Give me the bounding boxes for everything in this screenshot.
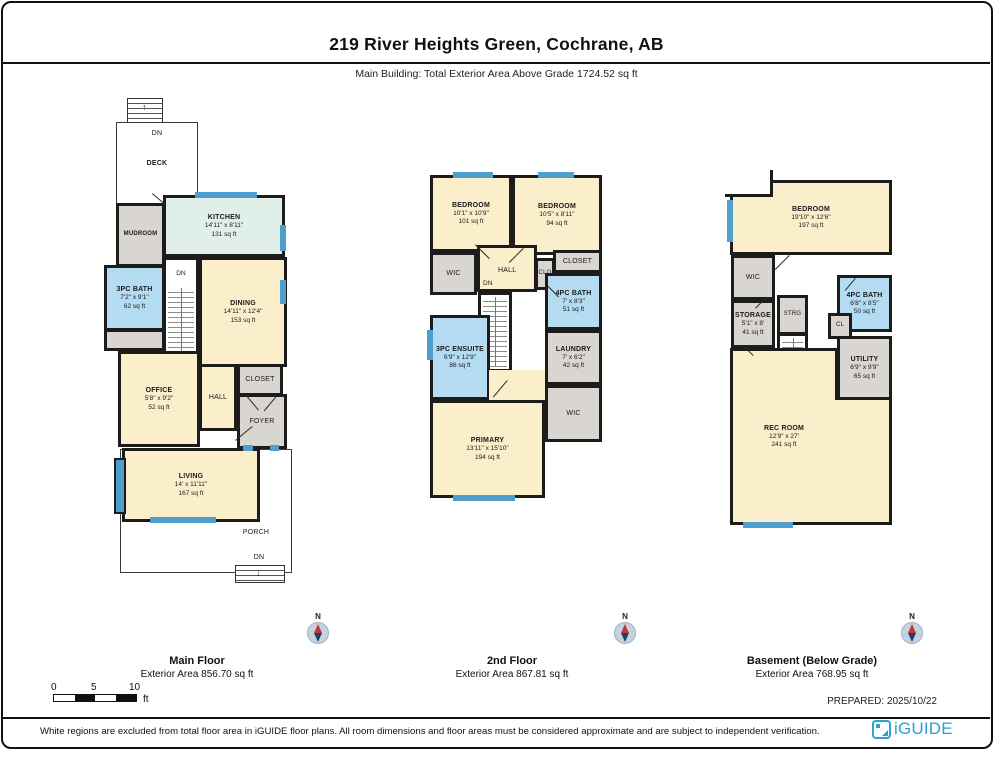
footer-divider bbox=[3, 717, 990, 719]
room-name: WIC bbox=[566, 409, 580, 418]
scale-segment bbox=[54, 695, 75, 701]
window bbox=[453, 495, 515, 501]
room-area: 131 sq ft bbox=[212, 231, 237, 239]
up-arrow-icon: ↑ bbox=[142, 102, 147, 112]
deck-dn-label: DN bbox=[117, 129, 197, 138]
window bbox=[243, 445, 253, 451]
window bbox=[195, 192, 257, 198]
porch-dn-label: DN bbox=[239, 553, 279, 562]
floor-name: Main Floor bbox=[87, 655, 307, 667]
room-name: WIC bbox=[746, 273, 760, 282]
iguide-logo-icon bbox=[872, 720, 891, 739]
room-area: 62 sq ft bbox=[124, 303, 145, 311]
room-name: KITCHEN bbox=[208, 213, 241, 222]
room-dims: 10'5" x 8'11" bbox=[539, 211, 574, 219]
room-area: 167 sq ft bbox=[179, 490, 204, 498]
room-dims: 14'11" x 12'4" bbox=[224, 308, 263, 316]
room-name: 4PC BATH bbox=[846, 291, 882, 300]
scale-segment bbox=[75, 695, 96, 701]
scale-bar: 0 5 10 ft bbox=[53, 682, 163, 702]
compass-needle-south bbox=[908, 633, 916, 642]
room-deck: DN DECK bbox=[116, 122, 198, 206]
room-name: LIVING bbox=[179, 472, 204, 481]
floor-name: 2nd Floor bbox=[402, 655, 622, 667]
floor-label-second: 2nd Floor Exterior Area 867.81 sq ft bbox=[402, 655, 622, 680]
room-name: BEDROOM bbox=[538, 202, 576, 211]
room-dims: 14' x 11'11" bbox=[175, 481, 207, 489]
room-area: 41 sq ft bbox=[742, 329, 763, 337]
rec-room-extension bbox=[835, 397, 892, 525]
room-area: 153 sq ft bbox=[231, 317, 256, 325]
stairs-dn-label: DN bbox=[166, 270, 196, 277]
room-dims: 13'11" x 15'10" bbox=[466, 445, 508, 453]
room-dims: 19'10" x 12'6" bbox=[791, 214, 830, 222]
compass-n-label: N bbox=[303, 612, 333, 621]
room-area: 197 sq ft bbox=[799, 222, 824, 230]
room-area: 86 sq ft bbox=[449, 362, 470, 370]
scale-segment bbox=[116, 695, 137, 701]
room-area: 51 sq ft bbox=[563, 306, 584, 314]
disclaimer-text: White regions are excluded from total fl… bbox=[40, 726, 820, 737]
room-name: BEDROOM bbox=[792, 205, 830, 214]
window bbox=[427, 330, 433, 360]
room-name: BEDROOM bbox=[452, 201, 490, 210]
bay-window bbox=[114, 458, 126, 514]
room-area: 241 sq ft bbox=[772, 441, 797, 449]
room-dims: 6'9" x 12'9" bbox=[444, 354, 476, 362]
room-area: 94 sq ft bbox=[546, 220, 567, 228]
compass-n-label: N bbox=[610, 612, 640, 621]
page-subtitle: Main Building: Total Exterior Area Above… bbox=[0, 68, 993, 80]
room-cl: CL bbox=[828, 313, 852, 339]
room-name: FOYER bbox=[249, 417, 274, 426]
room-name: STORAGE bbox=[735, 311, 771, 320]
room-dims: 5'8" x 9'2" bbox=[145, 395, 173, 403]
room-name: HALL bbox=[498, 266, 516, 275]
floor-label-main: Main Floor Exterior Area 856.70 sq ft bbox=[87, 655, 307, 680]
scale-segment bbox=[95, 695, 116, 701]
room-wic-2: WIC bbox=[545, 385, 602, 442]
room-area: 194 sq ft bbox=[475, 454, 500, 462]
room-foyer: FOYER bbox=[237, 394, 287, 449]
floor-area: Exterior Area 856.70 sq ft bbox=[87, 669, 307, 680]
stairs-dn-label: DN bbox=[483, 280, 492, 287]
room-utility: UTILITY 6'9" x 9'9" 65 sq ft bbox=[837, 336, 892, 400]
room-name: HALL bbox=[209, 393, 227, 402]
window bbox=[453, 172, 493, 178]
room-name: WIC bbox=[446, 269, 460, 278]
scale-unit: ft bbox=[143, 694, 149, 705]
floor-label-basement: Basement (Below Grade) Exterior Area 768… bbox=[702, 655, 922, 680]
window bbox=[280, 225, 286, 251]
room-wic: WIC bbox=[430, 252, 477, 295]
room-name: CLOSET bbox=[245, 375, 274, 384]
down-arrow-icon: ↓ bbox=[256, 568, 261, 578]
compass-needle-north bbox=[621, 624, 629, 633]
room-dims: 5'1" x 8' bbox=[742, 320, 765, 328]
room-dims: 10'1" x 10'9" bbox=[453, 210, 489, 218]
compass-needle-south bbox=[314, 633, 322, 642]
room-mudroom: MUDROOM bbox=[116, 203, 165, 267]
plan-basement: BEDROOM 19'10" x 12'6" 197 sq ft WIC STR… bbox=[725, 170, 895, 527]
scale-tick-10: 10 bbox=[129, 682, 140, 693]
room-kitchen: KITCHEN 14'11" x 8'11" 131 sq ft bbox=[163, 195, 285, 257]
compass-needle-north bbox=[314, 624, 322, 633]
prepared-date: PREPARED: 2025/10/22 bbox=[827, 696, 937, 707]
room-name: REC ROOM bbox=[764, 424, 804, 433]
room-dims: 12'9" x 27' bbox=[769, 433, 799, 441]
room-rec-room: REC ROOM 12'9" x 27' 241 sq ft bbox=[730, 348, 838, 525]
room-name: MUDROOM bbox=[124, 231, 158, 239]
compass-icon bbox=[614, 622, 636, 644]
room-area: 52 sq ft bbox=[148, 404, 169, 412]
window bbox=[150, 517, 216, 523]
room-dining: DINING 14'11" x 12'4" 153 sq ft bbox=[199, 257, 287, 367]
iguide-logo: iGUIDE bbox=[872, 719, 953, 739]
page-title: 219 River Heights Green, Cochrane, AB bbox=[0, 34, 993, 55]
room-laundry: LAUNDRY 7' x 6'2" 42 sq ft bbox=[545, 330, 602, 385]
floor-area: Exterior Area 768.95 sq ft bbox=[702, 669, 922, 680]
room-wic: WIC bbox=[731, 255, 775, 300]
room-area: 101 sq ft bbox=[459, 218, 484, 226]
window bbox=[280, 280, 286, 304]
room-bedroom-1: BEDROOM 10'1" x 10'9" 101 sq ft bbox=[430, 175, 512, 252]
room-closet: CLOSET bbox=[553, 250, 602, 273]
iguide-logo-text: iGUIDE bbox=[894, 719, 953, 739]
room-name: STRG bbox=[784, 311, 801, 319]
plan-second-floor: BEDROOM 10'1" x 10'9" 101 sq ft BEDROOM … bbox=[427, 168, 609, 500]
compass-needle-south bbox=[621, 633, 629, 642]
door-swing bbox=[775, 255, 790, 270]
title-divider bbox=[3, 62, 990, 64]
compass-n-label: N bbox=[897, 612, 927, 621]
floor-plan-sheet: 219 River Heights Green, Cochrane, AB Ma… bbox=[0, 0, 993, 768]
floor-area: Exterior Area 867.81 sq ft bbox=[402, 669, 622, 680]
compass-basement: N bbox=[897, 612, 927, 644]
room-name: 3PC BATH bbox=[116, 285, 152, 294]
compass-icon bbox=[307, 622, 329, 644]
window bbox=[538, 172, 574, 178]
room-hall: HALL bbox=[199, 364, 237, 431]
room-dims: 7' x 8'3" bbox=[562, 298, 585, 306]
room-storage: STORAGE 5'1" x 8' 41 sq ft bbox=[731, 300, 775, 348]
room-name: PRIMARY bbox=[471, 436, 504, 445]
scale-tick-5: 5 bbox=[91, 682, 97, 693]
room-4pc-bath: 4PC BATH 7' x 8'3" 51 sq ft bbox=[545, 273, 602, 330]
room-3pc-ensuite: 3PC ENSUITE 6'9" x 12'9" 86 sq ft bbox=[430, 315, 490, 400]
room-area: 42 sq ft bbox=[563, 362, 584, 370]
room-primary: PRIMARY 13'11" x 15'10" 194 sq ft bbox=[430, 400, 545, 498]
room-closet: CLOSET bbox=[237, 364, 283, 396]
room-3pc-bath: 3PC BATH 7'2" x 9'1" 62 sq ft bbox=[104, 265, 165, 331]
compass-icon bbox=[901, 622, 923, 644]
room-name: CL bbox=[836, 322, 844, 330]
room-name: UTILITY bbox=[851, 355, 879, 364]
compass-second: N bbox=[610, 612, 640, 644]
room-dims: 7'2" x 9'1" bbox=[120, 294, 148, 302]
room-dims: 6'8" x 8'5" bbox=[850, 300, 878, 308]
scale-tick-0: 0 bbox=[51, 682, 57, 693]
scale-bar-numbers: 0 5 10 bbox=[53, 682, 163, 693]
room-dims: 6'9" x 9'9" bbox=[850, 364, 878, 372]
plan-main-floor: ↑ DN DECK KITCHEN 14'11" x 8'11" 131 sq … bbox=[100, 98, 292, 590]
window bbox=[270, 445, 279, 451]
room-name: CLOSET bbox=[563, 257, 592, 266]
window bbox=[727, 200, 733, 242]
room-name: 4PC BATH bbox=[555, 289, 591, 298]
compass-main: N bbox=[303, 612, 333, 644]
room-bedroom-2: BEDROOM 10'5" x 8'11" 94 sq ft bbox=[512, 175, 602, 255]
room-name: 3PC ENSUITE bbox=[436, 345, 484, 354]
window bbox=[743, 522, 793, 528]
room-office: OFFICE 5'8" x 9'2" 52 sq ft bbox=[118, 351, 200, 447]
room-name: OFFICE bbox=[146, 386, 173, 395]
room-name: DECK bbox=[147, 159, 168, 168]
room-area: 50 sq ft bbox=[854, 308, 875, 316]
room-dims: 7' x 6'2" bbox=[562, 354, 585, 362]
room-name: PORCH bbox=[221, 528, 291, 537]
hall-nook bbox=[104, 329, 165, 351]
room-living: LIVING 14' x 11'11" 167 sq ft bbox=[122, 448, 260, 522]
room-dims: 14'11" x 8'11" bbox=[205, 222, 243, 230]
building-notch bbox=[725, 170, 773, 197]
room-strg: STRG bbox=[777, 295, 808, 335]
primary-entry bbox=[489, 370, 545, 404]
floor-name: Basement (Below Grade) bbox=[702, 655, 922, 667]
compass-needle-north bbox=[908, 624, 916, 633]
room-area: 65 sq ft bbox=[854, 373, 875, 381]
room-name: LAUNDRY bbox=[556, 345, 591, 354]
room-name: DINING bbox=[230, 299, 256, 308]
scale-bar-segments bbox=[53, 694, 137, 702]
